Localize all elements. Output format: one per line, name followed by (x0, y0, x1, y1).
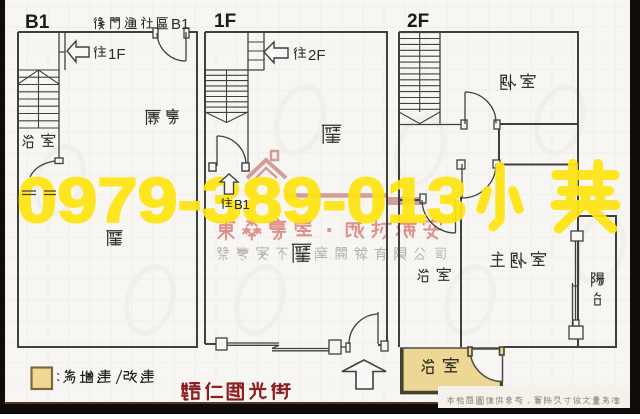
svg-text:1F: 1F (108, 46, 126, 63)
svg-text:2F: 2F (407, 11, 429, 32)
svg-text:B1: B1 (171, 16, 189, 33)
svg-text:B1: B1 (25, 12, 50, 33)
svg-text:B1: B1 (234, 197, 250, 212)
svg-text:2F: 2F (308, 47, 326, 64)
svg-text:1F: 1F (214, 11, 236, 32)
